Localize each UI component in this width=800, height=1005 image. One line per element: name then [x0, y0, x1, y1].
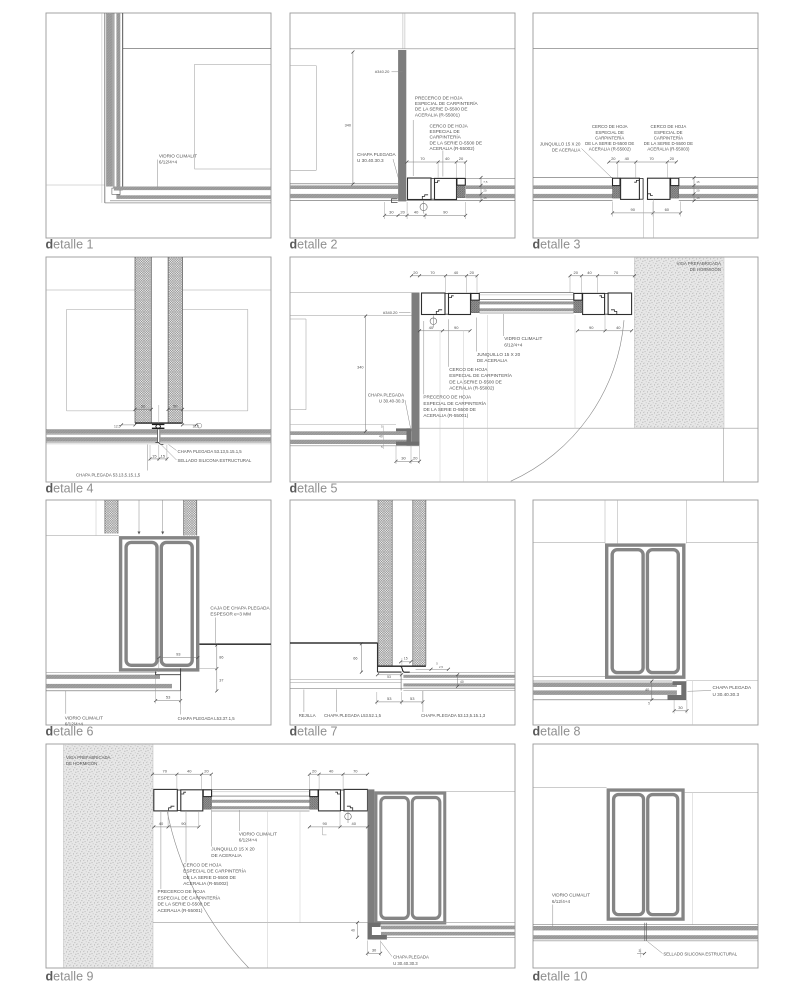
svg-text:ESPECIAL DE: ESPECIAL DE	[596, 130, 624, 135]
svg-text:86: 86	[219, 655, 223, 659]
svg-text:CHAPA PLEGADA: CHAPA PLEGADA	[713, 685, 753, 690]
svg-text:ACERALIA (R-55002): ACERALIA (R-55002)	[589, 147, 632, 152]
svg-text:DE ACERALIA: DE ACERALIA	[477, 358, 508, 363]
svg-text:20: 20	[696, 189, 700, 193]
svg-text:ACERALIA (R-55002): ACERALIA (R-55002)	[449, 385, 494, 390]
svg-text:DE LA SERIE D-5500 DE: DE LA SERIE D-5500 DE	[430, 140, 483, 145]
svg-text:CHAPA PLEGADA: CHAPA PLEGADA	[368, 392, 404, 397]
svg-text:DE ACERALIA: DE ACERALIA	[552, 148, 581, 153]
svg-text:20: 20	[312, 768, 317, 773]
svg-text:CHAPA PLEGADA 53.13,5.15.1,5: CHAPA PLEGADA 53.13,5.15.1,5	[178, 449, 243, 454]
svg-text:50: 50	[173, 404, 178, 409]
svg-text:detalle 1: detalle 1	[46, 238, 94, 252]
svg-text:DE HORMIGÓN: DE HORMIGÓN	[690, 267, 721, 272]
svg-text:90: 90	[589, 325, 594, 330]
svg-text:5: 5	[648, 702, 650, 706]
svg-text:CARPINTERÍA: CARPINTERÍA	[595, 135, 624, 140]
svg-text:20: 20	[611, 156, 616, 161]
svg-text:40: 40	[587, 270, 592, 275]
svg-text:40: 40	[445, 156, 450, 161]
svg-text:40: 40	[454, 270, 459, 275]
svg-text:ESPECIAL DE CARPINTERÍA: ESPECIAL DE CARPINTERÍA	[449, 372, 513, 378]
svg-text:30: 30	[401, 455, 406, 460]
svg-text:SELLADO SILICONA ESTRUCTURAL: SELLADO SILICONA ESTRUCTURAL	[663, 951, 737, 956]
svg-text:90: 90	[181, 821, 186, 826]
svg-text:DE ACERALIA: DE ACERALIA	[211, 853, 242, 858]
svg-text:detalle 5: detalle 5	[290, 482, 338, 496]
svg-text:30: 30	[678, 705, 683, 710]
svg-text:REJILLA: REJILLA	[299, 713, 316, 718]
svg-text:50: 50	[141, 404, 146, 409]
svg-text:15: 15	[152, 453, 157, 458]
svg-text:CERCO DE HOJA: CERCO DE HOJA	[183, 863, 222, 868]
svg-text:20: 20	[204, 768, 209, 773]
svg-text:40: 40	[352, 821, 357, 826]
svg-text:20: 20	[670, 156, 675, 161]
svg-text:VIDRIO CLIMALIT: VIDRIO CLIMALIT	[159, 154, 197, 159]
svg-text:37: 37	[219, 678, 223, 682]
svg-text:ESPECIAL DE CARPINTERÍA: ESPECIAL DE CARPINTERÍA	[423, 400, 487, 406]
svg-text:40: 40	[645, 688, 649, 692]
svg-text:CHAPA PLEGADA: CHAPA PLEGADA	[393, 955, 429, 960]
svg-text:15: 15	[696, 180, 700, 184]
svg-text:U 30.40.30.3: U 30.40.30.3	[393, 961, 418, 966]
svg-text:12,5: 12,5	[114, 424, 121, 428]
svg-text:DE LA SERIE D-5500 DE: DE LA SERIE D-5500 DE	[158, 902, 211, 907]
svg-text:70: 70	[353, 768, 358, 773]
svg-text:CERCO DE HOJA: CERCO DE HOJA	[592, 124, 628, 129]
svg-text:ACERALIA (R-55001): ACERALIA (R-55001)	[423, 413, 468, 418]
svg-text:70: 70	[649, 156, 654, 161]
svg-text:6/12/4+4: 6/12/4+4	[239, 838, 258, 843]
svg-text:5: 5	[381, 424, 383, 428]
svg-text:20: 20	[413, 455, 418, 460]
svg-text:JUNQUILLO 15 X 20: JUNQUILLO 15 X 20	[540, 142, 581, 147]
svg-text:VIGA PREFABRICADA: VIGA PREFABRICADA	[677, 261, 722, 266]
svg-text:CERCO DE HOJA: CERCO DE HOJA	[651, 124, 687, 129]
svg-text:20: 20	[459, 156, 464, 161]
svg-text:VIDRIO CLIMALIT: VIDRIO CLIMALIT	[65, 715, 103, 720]
svg-text:DE LA SERIE D-5500 DE: DE LA SERIE D-5500 DE	[449, 379, 502, 384]
svg-text:SELLADO SILICONA ESTRUCTURAL: SELLADO SILICONA ESTRUCTURAL	[178, 458, 252, 463]
svg-text:ESPECIAL DE: ESPECIAL DE	[654, 130, 682, 135]
svg-text:30: 30	[389, 210, 394, 215]
svg-text:7,5: 7,5	[483, 180, 488, 184]
svg-text:CHAPA PLEGADA L53.52.1,5: CHAPA PLEGADA L53.52.1,5	[324, 713, 382, 718]
svg-text:30: 30	[372, 947, 377, 952]
svg-text:340: 340	[345, 124, 351, 128]
svg-text:VIDRIO CLIMALIT: VIDRIO CLIMALIT	[504, 336, 542, 341]
svg-text:detalle 3: detalle 3	[533, 238, 581, 252]
svg-text:DE LA SERIE D-5500 DE: DE LA SERIE D-5500 DE	[415, 107, 468, 112]
svg-text:90: 90	[443, 210, 448, 215]
svg-text:DE LA SERIE D-5500 DE: DE LA SERIE D-5500 DE	[585, 141, 634, 146]
svg-text:5: 5	[436, 661, 438, 665]
svg-text:53: 53	[166, 695, 171, 700]
svg-text:PRECERCO DE HOJA: PRECERCO DE HOJA	[415, 96, 464, 101]
svg-text:U 30.40-30.3: U 30.40-30.3	[379, 399, 405, 404]
svg-text:ESPECIAL DE CARPINTERÍA: ESPECIAL DE CARPINTERÍA	[183, 868, 247, 874]
svg-text:15: 15	[404, 657, 408, 661]
svg-text:JUNQUILLO 15 X 20: JUNQUILLO 15 X 20	[211, 847, 255, 852]
svg-text:93: 93	[176, 652, 181, 657]
svg-text:ACERALIA (R-55002): ACERALIA (R-55002)	[183, 881, 228, 886]
svg-text:53: 53	[387, 696, 392, 701]
svg-text:90: 90	[454, 325, 459, 330]
svg-text:ESPECIAL DE CARPINTERÍA: ESPECIAL DE CARPINTERÍA	[415, 100, 479, 106]
svg-text:40: 40	[625, 156, 630, 161]
svg-text:VIGA PREFABRICADA: VIGA PREFABRICADA	[66, 755, 111, 760]
svg-text:ESPECIAL DE CARPINTERÍA: ESPECIAL DE CARPINTERÍA	[158, 894, 222, 900]
svg-text:VIDRIO CLIMALIT: VIDRIO CLIMALIT	[552, 893, 590, 898]
svg-text:40: 40	[414, 210, 419, 215]
svg-text:VIDRIO CLIMALIT: VIDRIO CLIMALIT	[239, 831, 277, 836]
svg-text:20: 20	[470, 270, 475, 275]
svg-text:70: 70	[614, 270, 619, 275]
svg-text:20: 20	[400, 210, 405, 215]
svg-text:70: 70	[430, 270, 435, 275]
svg-text:detalle 8: detalle 8	[533, 725, 581, 739]
svg-text:#340.20: #340.20	[383, 310, 398, 315]
svg-text:53: 53	[387, 675, 391, 679]
svg-text:detalle 9: detalle 9	[46, 970, 94, 984]
svg-text:detalle 10: detalle 10	[533, 970, 588, 984]
svg-text:ESPECIAL DE: ESPECIAL DE	[430, 129, 460, 134]
svg-text:CARPINTERÍA: CARPINTERÍA	[654, 135, 683, 140]
svg-text:ACERALIA (R-55001): ACERALIA (R-55001)	[158, 908, 203, 913]
svg-text:70: 70	[420, 156, 425, 161]
svg-text:340: 340	[357, 366, 363, 370]
svg-text:53: 53	[410, 696, 415, 701]
svg-text:3: 3	[639, 949, 641, 953]
svg-text:CAJA DE CHAPA PLEGADA: CAJA DE CHAPA PLEGADA	[210, 605, 270, 610]
svg-text:ACERALIA (R-55003): ACERALIA (R-55003)	[647, 147, 690, 152]
svg-text:90: 90	[631, 207, 636, 212]
svg-text:40: 40	[329, 768, 334, 773]
svg-text:CHAPA PLEGADA 53.13,5.15.1,3: CHAPA PLEGADA 53.13,5.15.1,3	[421, 713, 486, 718]
svg-text:40: 40	[351, 929, 355, 933]
svg-text:CERCO DE HOJA: CERCO DE HOJA	[430, 124, 469, 129]
svg-text:DE HORMIGÓN: DE HORMIGÓN	[66, 761, 97, 766]
svg-text:90: 90	[322, 821, 327, 826]
svg-text:PRECERCO DE HOJA: PRECERCO DE HOJA	[158, 889, 207, 894]
svg-text:70: 70	[162, 768, 167, 773]
svg-text:5: 5	[381, 445, 383, 449]
svg-text:40: 40	[159, 821, 164, 826]
svg-text:ESPESOR e=3 MM: ESPESOR e=3 MM	[210, 612, 251, 617]
svg-text:40: 40	[379, 435, 383, 439]
svg-text:20: 20	[574, 270, 579, 275]
svg-text:PRECERCO DE HOJA: PRECERCO DE HOJA	[423, 395, 472, 400]
svg-text:20: 20	[413, 270, 418, 275]
svg-text:U 30.40.30.3: U 30.40.30.3	[357, 158, 384, 163]
svg-text:detalle 4: detalle 4	[46, 482, 94, 496]
svg-text:6/12/4+4: 6/12/4+4	[504, 342, 523, 347]
svg-text:JUNQUILLO 15 X 20: JUNQUILLO 15 X 20	[477, 352, 521, 357]
svg-text:15: 15	[696, 196, 700, 200]
svg-text:#340.20: #340.20	[375, 69, 390, 74]
svg-text:60: 60	[665, 207, 670, 212]
svg-text:20: 20	[483, 189, 487, 193]
svg-text:ACERALIA (R-55002): ACERALIA (R-55002)	[430, 146, 475, 151]
svg-text:CHAPA PLEGADA: CHAPA PLEGADA	[357, 152, 397, 157]
svg-text:DE LA SERIE D-5500 DE: DE LA SERIE D-5500 DE	[183, 875, 236, 880]
svg-text:CARPINTERÍA: CARPINTERÍA	[430, 134, 462, 140]
svg-text:DE LA SERIE D-5500 DE: DE LA SERIE D-5500 DE	[644, 141, 693, 146]
svg-text:2,5: 2,5	[439, 665, 444, 669]
svg-text:40: 40	[460, 680, 464, 684]
svg-text:detalle 7: detalle 7	[290, 725, 338, 739]
svg-text:15: 15	[161, 453, 166, 458]
svg-text:U 30.40.30.3: U 30.40.30.3	[713, 692, 740, 697]
svg-text:ACERALIA (R-55001): ACERALIA (R-55001)	[415, 112, 460, 117]
svg-text:detalle 2: detalle 2	[290, 238, 338, 252]
svg-text:15: 15	[483, 196, 487, 200]
svg-text:6/12/4+4: 6/12/4+4	[159, 160, 178, 165]
svg-text:CHAPA PLEGADA L53.37.1,5: CHAPA PLEGADA L53.37.1,5	[178, 716, 236, 721]
svg-text:40: 40	[187, 768, 192, 773]
svg-text:6/12/4+4: 6/12/4+4	[65, 722, 84, 727]
svg-text:CHAPA PLEGADA 53.13,5.15.1,5: CHAPA PLEGADA 53.13,5.15.1,5	[76, 472, 141, 477]
svg-text:66: 66	[353, 656, 357, 660]
svg-text:CERCO DE HOJA: CERCO DE HOJA	[449, 367, 488, 372]
svg-text:6/12/4+4: 6/12/4+4	[552, 899, 571, 904]
svg-text:DE LA SERIE D-5500 DE: DE LA SERIE D-5500 DE	[423, 407, 476, 412]
svg-text:40: 40	[616, 325, 621, 330]
